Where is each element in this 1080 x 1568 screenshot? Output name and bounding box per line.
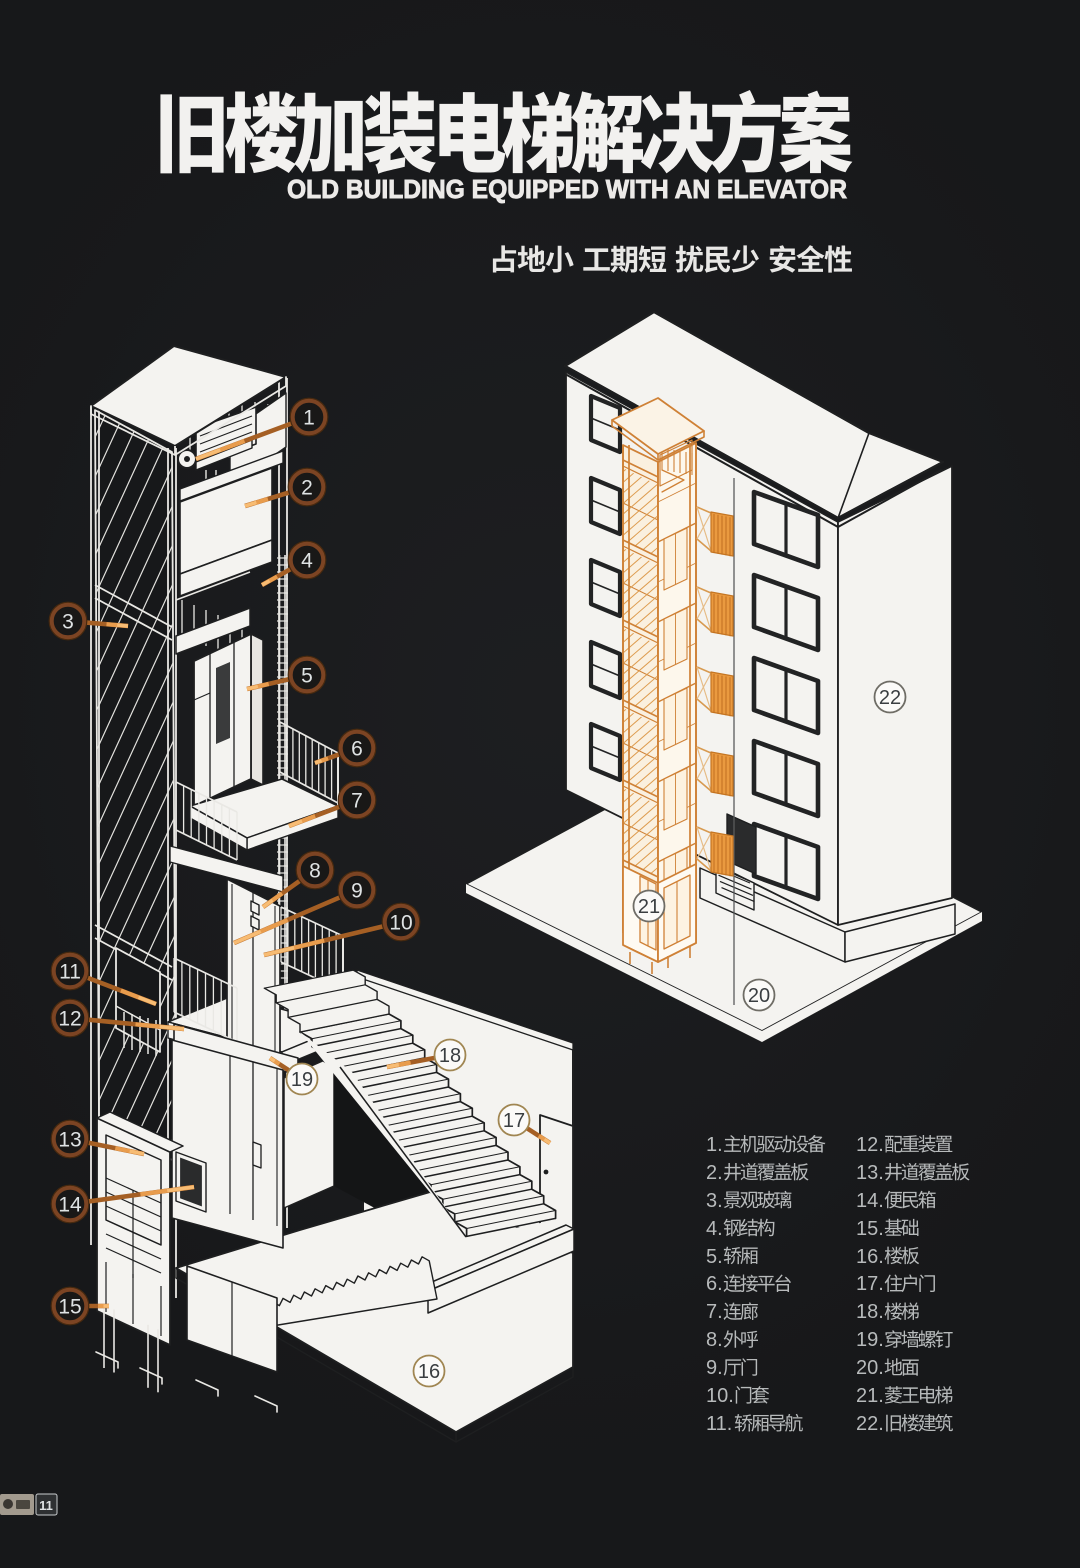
svg-text:2: 2 — [301, 477, 313, 500]
svg-text:6.: 6. — [706, 1273, 723, 1295]
svg-text:2.: 2. — [706, 1162, 723, 1184]
svg-text:1.: 1. — [706, 1134, 723, 1156]
svg-text:17.: 17. — [856, 1273, 884, 1295]
svg-text:22: 22 — [879, 687, 901, 709]
svg-text:22.: 22. — [856, 1413, 884, 1435]
svg-text:8: 8 — [309, 860, 321, 883]
svg-text:13.: 13. — [856, 1162, 884, 1184]
svg-text:3: 3 — [62, 611, 74, 634]
svg-text:1: 1 — [303, 407, 315, 430]
svg-text:21: 21 — [638, 896, 660, 918]
svg-text:10.: 10. — [706, 1385, 734, 1407]
svg-text:21.: 21. — [856, 1385, 884, 1407]
svg-text:11: 11 — [59, 961, 81, 984]
svg-text:11: 11 — [39, 1498, 53, 1513]
svg-text:18: 18 — [439, 1045, 461, 1067]
svg-text:19: 19 — [291, 1069, 313, 1091]
svg-text:6: 6 — [351, 738, 363, 761]
svg-text:8.: 8. — [706, 1329, 723, 1351]
svg-text:OLD BUILDING EQUIPPED WITH AN: OLD BUILDING EQUIPPED WITH AN ELEVATOR — [287, 174, 847, 204]
svg-text:18.: 18. — [856, 1301, 884, 1323]
svg-text:9: 9 — [351, 880, 363, 903]
svg-text:7.: 7. — [706, 1301, 723, 1323]
svg-text:17: 17 — [503, 1110, 525, 1132]
svg-text:10: 10 — [389, 912, 412, 935]
svg-text:15: 15 — [58, 1296, 81, 1319]
svg-text:20: 20 — [748, 985, 770, 1007]
svg-text:15.: 15. — [856, 1218, 884, 1240]
svg-text:7: 7 — [351, 790, 363, 813]
svg-text:12.: 12. — [856, 1134, 884, 1156]
svg-text:11.: 11. — [706, 1413, 732, 1435]
svg-text:4.: 4. — [706, 1218, 723, 1240]
svg-text:13: 13 — [58, 1129, 81, 1152]
svg-text:14.: 14. — [856, 1190, 884, 1212]
svg-text:4: 4 — [301, 550, 313, 573]
svg-text:20.: 20. — [856, 1357, 884, 1379]
svg-text:3.: 3. — [706, 1190, 723, 1212]
svg-text:16: 16 — [418, 1361, 440, 1383]
svg-text:12: 12 — [58, 1008, 81, 1031]
svg-text:16.: 16. — [856, 1246, 884, 1268]
svg-text:5.: 5. — [706, 1246, 723, 1268]
svg-text:14: 14 — [58, 1194, 82, 1217]
svg-text:5: 5 — [301, 665, 313, 688]
svg-text:19.: 19. — [856, 1329, 884, 1351]
svg-text:9.: 9. — [706, 1357, 723, 1379]
